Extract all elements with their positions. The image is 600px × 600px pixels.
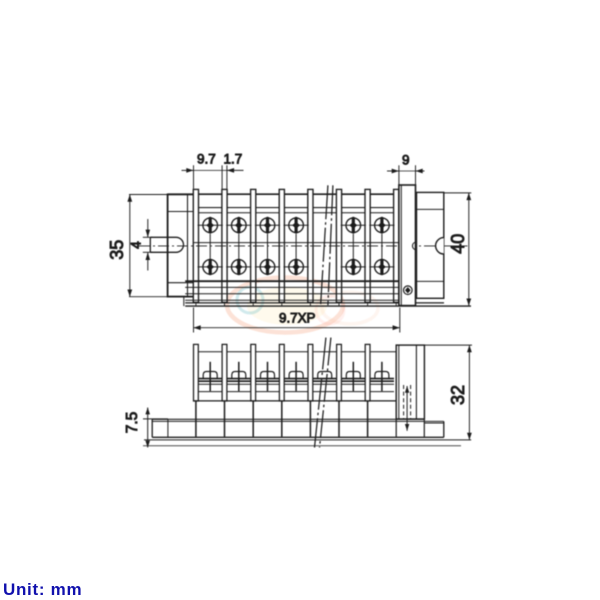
svg-text:35: 35 [107, 240, 127, 260]
svg-text:1.7: 1.7 [224, 152, 243, 167]
svg-text:9.7: 9.7 [197, 152, 216, 167]
svg-text:32: 32 [448, 385, 468, 405]
svg-text:9: 9 [402, 152, 410, 167]
svg-text:9.7XP: 9.7XP [279, 310, 316, 325]
svg-text:4: 4 [129, 241, 144, 249]
svg-text:40: 40 [448, 234, 468, 254]
svg-text:7.5: 7.5 [124, 412, 141, 434]
